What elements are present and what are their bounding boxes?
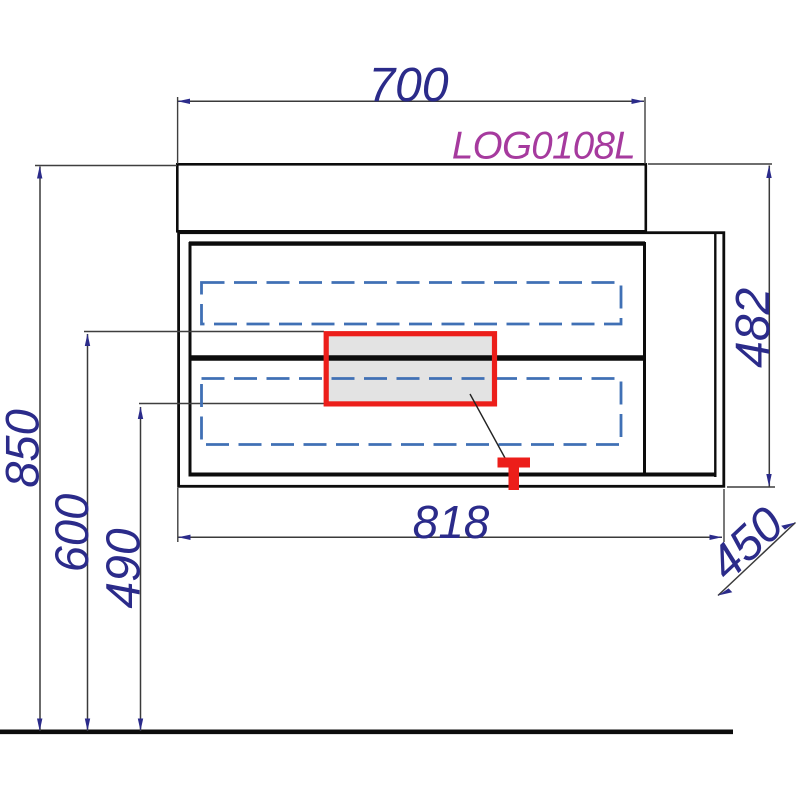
svg-text:850: 850 [0, 409, 48, 487]
svg-text:600: 600 [45, 494, 98, 572]
svg-text:LOG0108L: LOG0108L [452, 124, 635, 167]
svg-text:700: 700 [368, 59, 448, 112]
svg-text:490: 490 [97, 528, 150, 608]
svg-text:482: 482 [727, 288, 780, 368]
svg-text:818: 818 [413, 496, 490, 548]
